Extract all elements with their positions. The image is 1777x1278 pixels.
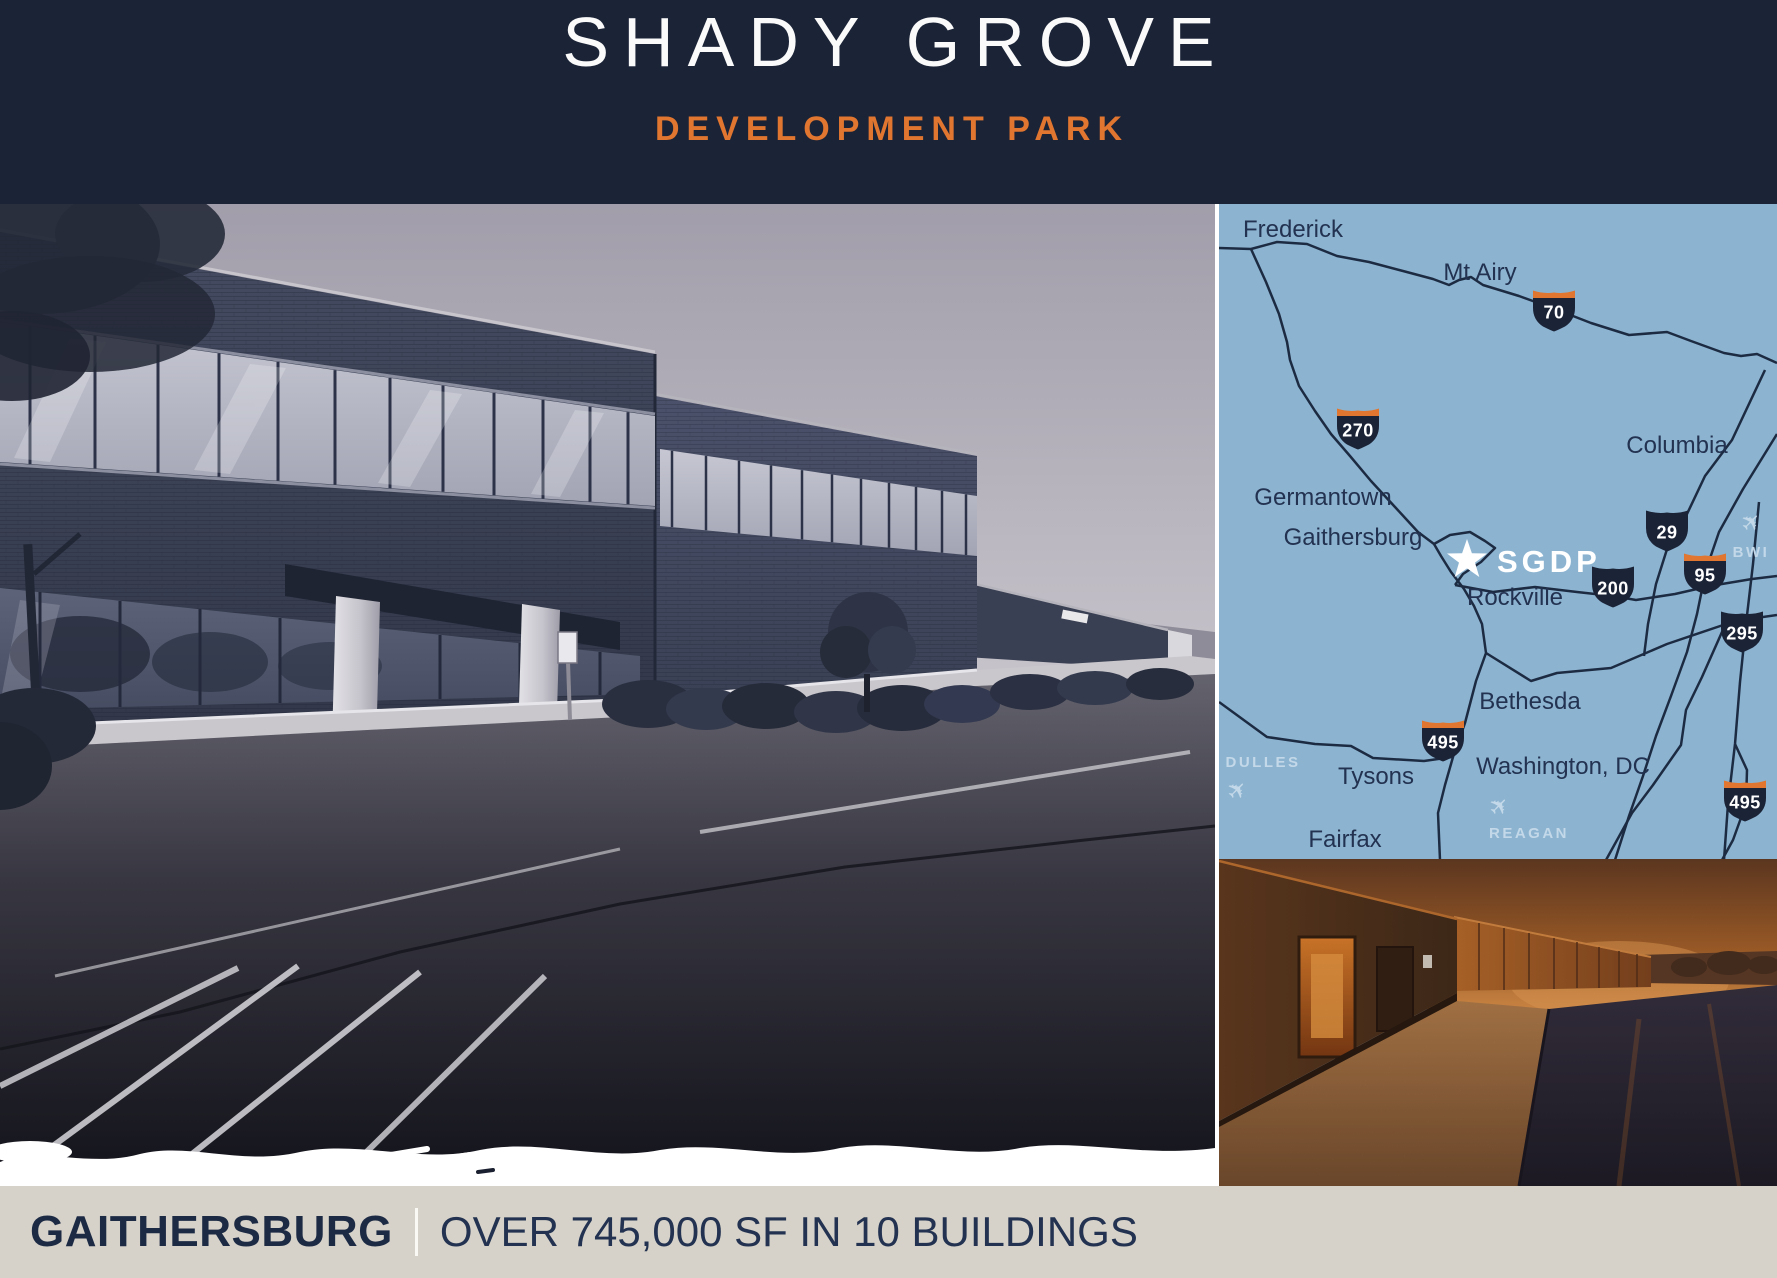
map-city-label: Mt Airy [1443,259,1516,286]
airport-label-REAGAN: REAGAN [1489,825,1569,842]
map-city-label: Columbia [1626,432,1728,459]
parking-lot [0,674,1215,1186]
svg-text:270: 270 [1342,421,1374,441]
content-area: FrederickMt AiryColumbiaGermantownGaithe… [0,204,1777,1186]
map-city-label: Rockville [1467,584,1563,611]
warehouse-photo [1219,859,1777,1186]
footer-bar: GAITHERSBURG OVER 745,000 SF IN 10 BUILD… [0,1186,1777,1278]
svg-text:495: 495 [1729,793,1761,813]
svg-text:200: 200 [1597,579,1629,599]
site-label: SGDP [1497,544,1601,579]
warehouse-photo-art [1219,859,1777,1186]
building-photo-art [0,204,1215,1186]
area-map: FrederickMt AiryColumbiaGermantownGaithe… [1219,204,1777,859]
svg-text:29: 29 [1656,523,1677,543]
right-column: FrederickMt AiryColumbiaGermantownGaithe… [1219,204,1777,1186]
map-city-label: Gaithersburg [1284,524,1423,551]
header: SHADY GROVE DEVELOPMENT PARK [0,0,1777,204]
airport-label-BWI: BWI [1733,544,1770,561]
svg-text:70: 70 [1543,303,1564,323]
svg-text:95: 95 [1694,566,1715,586]
map-city-label: Fairfax [1308,826,1381,853]
svg-text:495: 495 [1427,733,1459,753]
main-building-photo [0,204,1215,1186]
page-title: SHADY GROVE [0,0,1777,78]
page-subtitle: DEVELOPMENT PARK [0,114,1777,144]
footer-location: GAITHERSBURG [30,1207,393,1257]
svg-text:295: 295 [1726,624,1758,644]
map-city-label: Washington, DC [1476,753,1650,780]
flyer-page: SHADY GROVE DEVELOPMENT PARK [0,0,1777,1278]
footer-divider-bar [415,1208,418,1256]
map-canvas: FrederickMt AiryColumbiaGermantownGaithe… [1219,204,1777,859]
map-city-label: Germantown [1254,484,1391,511]
map-city-label: Frederick [1243,216,1344,243]
map-city-label: Tysons [1338,763,1414,790]
film-grain [1219,859,1777,1186]
footer-stats: OVER 745,000 SF IN 10 BUILDINGS [440,1208,1138,1256]
airport-label-DULLES: DULLES [1226,754,1301,771]
map-city-label: Bethesda [1479,688,1581,715]
